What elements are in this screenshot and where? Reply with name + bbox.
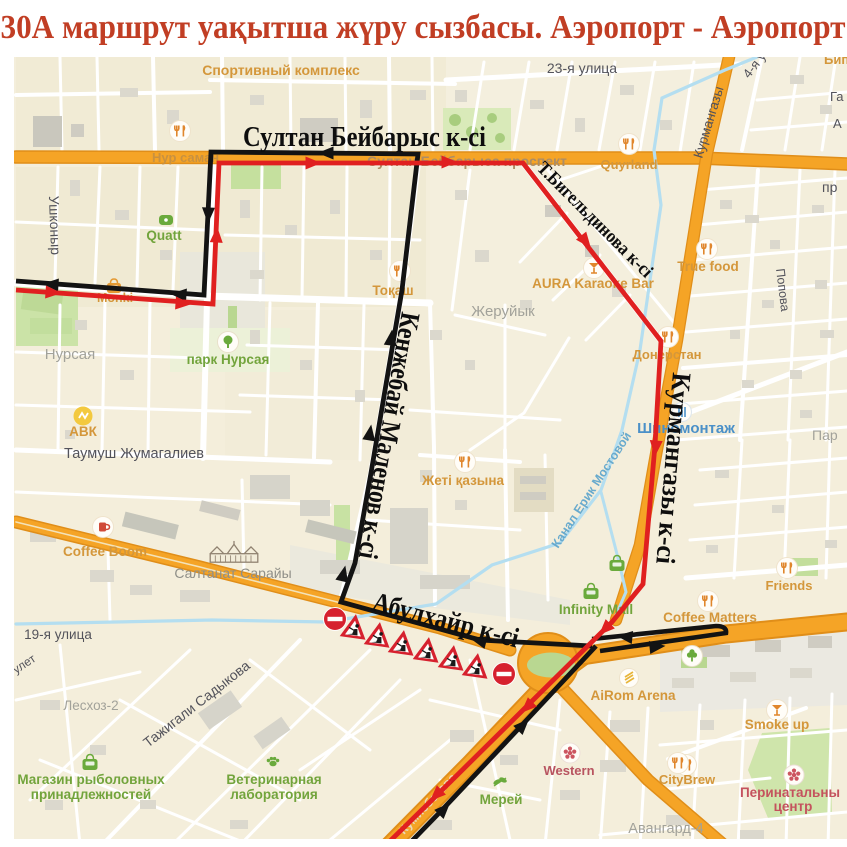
svg-text:19-я улица: 19-я улица: [24, 627, 92, 642]
svg-text:Таумуш Жумагалиев: Таумуш Жумагалиев: [64, 446, 204, 462]
svg-text:AiRom Arena: AiRom Arena: [590, 688, 676, 703]
svg-text:Пар: Пар: [812, 427, 838, 443]
svg-text:Авангард-4: Авангард-4: [628, 821, 703, 837]
svg-text:принадлежностей: принадлежностей: [31, 787, 151, 802]
svg-text:Нурсая: Нурсая: [45, 346, 95, 363]
svg-text:Ушконыр: Ушконыр: [46, 196, 64, 256]
svg-text:А: А: [833, 116, 842, 131]
svg-text:Quatt: Quatt: [146, 228, 182, 243]
svg-text:Султан Бейбарыс к-сі: Султан Бейбарыс к-сі: [243, 121, 486, 153]
svg-text:Smoke up: Smoke up: [745, 717, 810, 732]
svg-text:Friends: Friends: [766, 578, 813, 593]
svg-text:Ветеринарная: Ветеринарная: [226, 772, 321, 787]
svg-text:Га: Га: [830, 89, 844, 104]
svg-text:Салтанат Сарайы: Салтанат Сарайы: [174, 565, 291, 581]
svg-text:Жеті қазына: Жеті қазына: [421, 473, 504, 488]
svg-text:Мерей: Мерей: [480, 792, 523, 807]
svg-text:AURA Karaoke Bar: AURA Karaoke Bar: [532, 276, 655, 291]
svg-text:30А маршрут уақытша жүру сызба: 30А маршрут уақытша жүру сызбасы. Аэропо…: [1, 9, 846, 46]
svg-text:23-я улица: 23-я улица: [547, 60, 617, 76]
svg-text:пр: пр: [822, 179, 838, 195]
svg-text:Спортивный комплекс: Спортивный комплекс: [202, 62, 360, 78]
svg-text:Жеруйык: Жеруйык: [471, 303, 535, 320]
svg-text:АВК: АВК: [69, 424, 97, 439]
svg-text:Coffee Boom: Coffee Boom: [63, 544, 147, 559]
svg-text:CityBrew: CityBrew: [659, 772, 716, 787]
svg-text:Магазин рыболовных: Магазин рыболовных: [17, 772, 165, 787]
svg-text:Перинатальны: Перинатальны: [740, 785, 840, 800]
svg-text:центр: центр: [774, 799, 813, 814]
svg-text:Coffee Matters: Coffee Matters: [663, 610, 757, 625]
svg-text:парк Нурсая: парк Нурсая: [187, 352, 270, 367]
svg-text:Quyrland: Quyrland: [600, 157, 657, 172]
svg-text:лаборатория: лаборатория: [230, 787, 318, 802]
svg-text:Лесхоз-2: Лесхоз-2: [63, 698, 118, 713]
svg-text:Тоқаш: Тоқаш: [372, 283, 413, 298]
svg-text:Western: Western: [543, 763, 594, 778]
svg-text:Донерстан: Донерстан: [632, 347, 701, 362]
svg-text:True food: True food: [677, 259, 739, 274]
